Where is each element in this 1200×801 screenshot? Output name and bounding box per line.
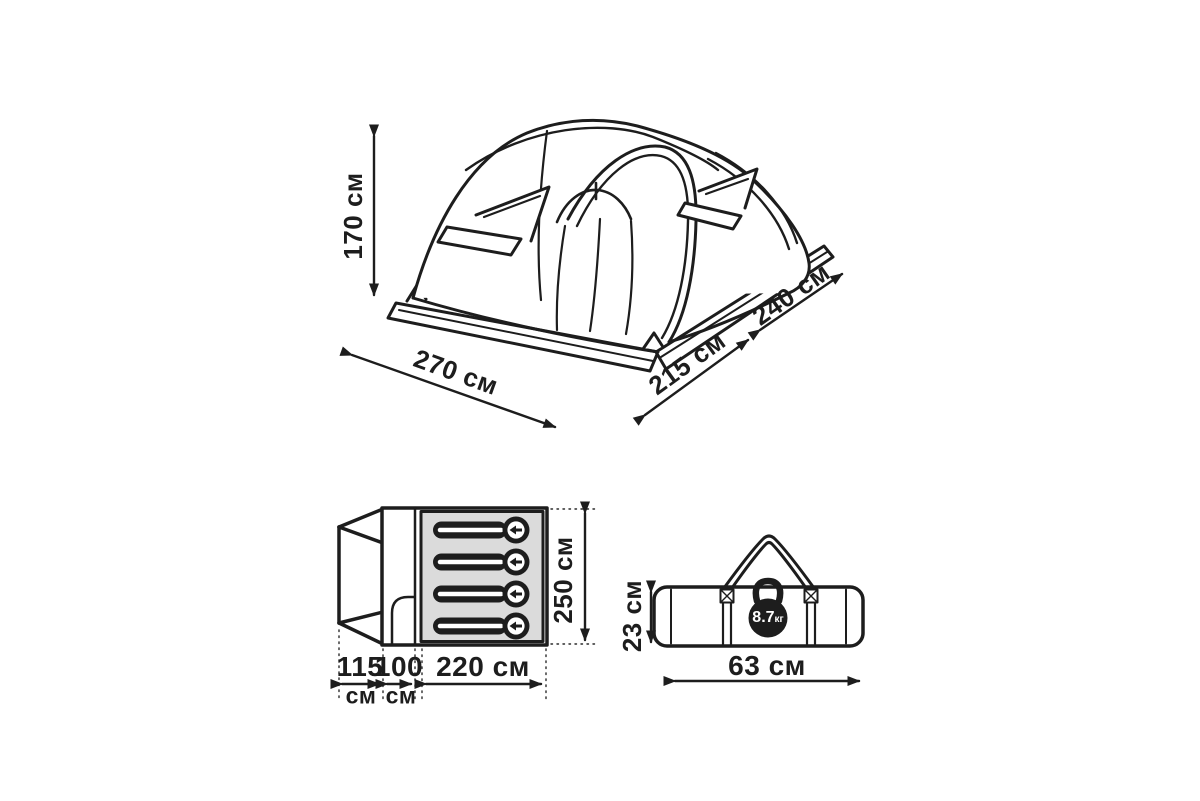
bedroom-depth-label: 250 см xyxy=(550,536,576,623)
tent-3d-drawing xyxy=(388,120,833,371)
stake-tab xyxy=(643,333,663,349)
bag-weight-unit: кг xyxy=(775,614,784,625)
diagram-line-art xyxy=(0,0,1200,801)
tambour-width-value: 100 xyxy=(375,653,423,681)
bag-height-label: 23 см xyxy=(619,580,645,652)
floor-plan-vestibule xyxy=(339,509,383,644)
tent-height-label: 170 см xyxy=(340,172,366,259)
bedroom-width-label: 220 см xyxy=(436,653,530,681)
vestibule-width-unit: см xyxy=(346,685,377,708)
tambour-width-unit: см xyxy=(386,685,417,708)
tent-dimensions-diagram: 170 см 270 см 215 см 240 см 115 см 100 с… xyxy=(0,0,1200,801)
tent-silhouette xyxy=(413,120,809,298)
bag-weight-value: 8.7 xyxy=(752,609,774,626)
bag-weight-label: 8.7кг xyxy=(752,610,783,626)
packed-bag-drawing xyxy=(654,536,863,646)
bag-length-label: 63 см xyxy=(728,652,806,680)
